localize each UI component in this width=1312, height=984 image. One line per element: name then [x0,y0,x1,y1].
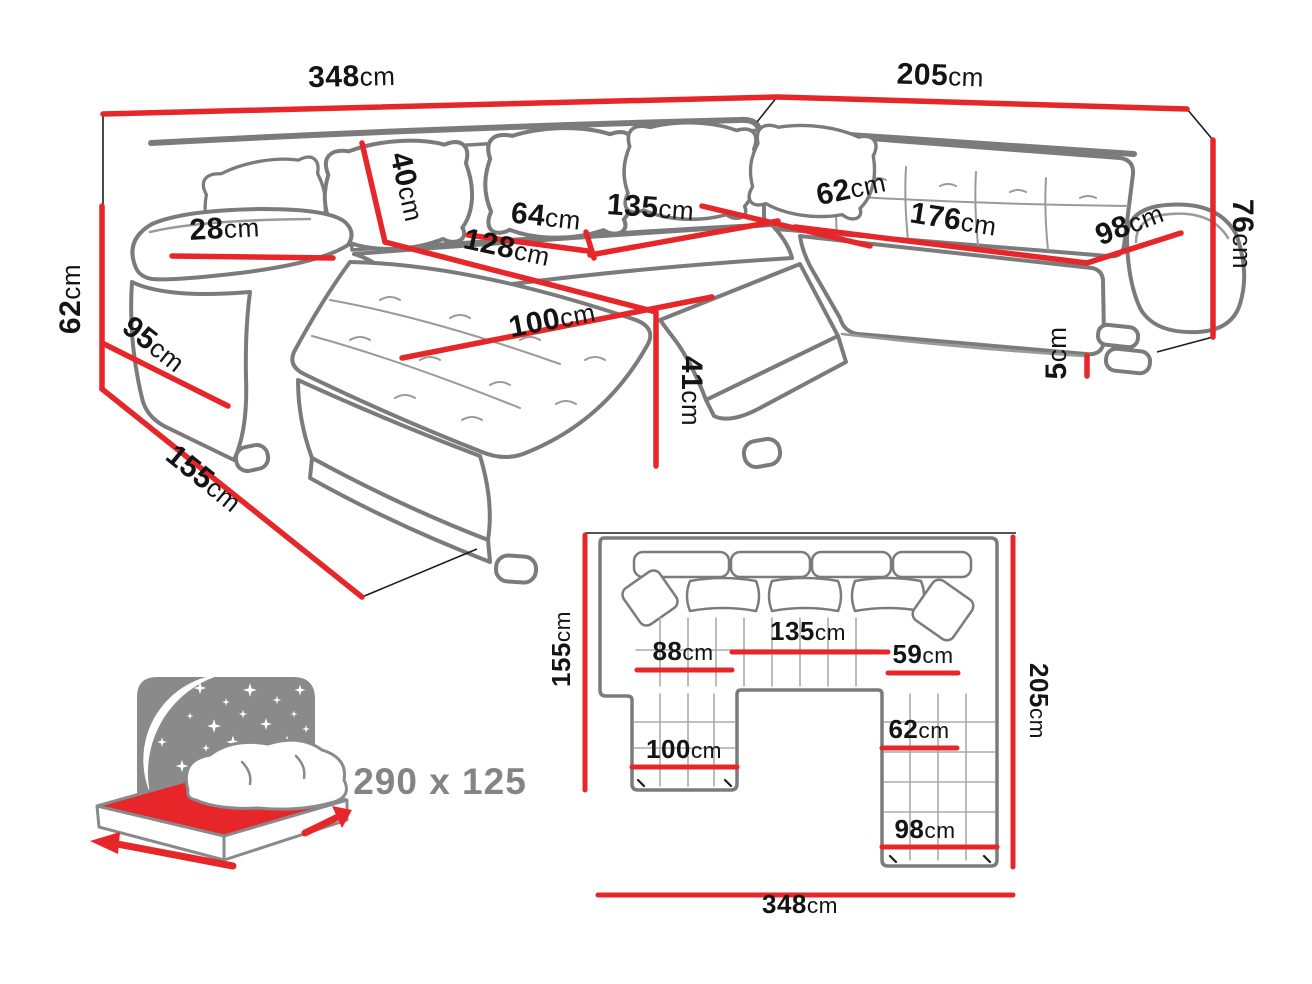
tv-100-chaise: 100cm [646,734,722,764]
sofa-foot [1097,324,1139,348]
left-armrest-body [131,282,250,460]
dim-line-348 [103,97,777,114]
plan-back-cushions [634,552,971,577]
dim-5-leg: 5cm [1040,327,1073,380]
tv-155-left: 155cm [546,611,576,687]
dim-348-top: 348cm [308,59,396,94]
dim-76-right-height: 76cm [1226,199,1259,269]
tv-205-right: 205cm [1024,663,1054,739]
tv-98-right: 98cm [894,814,955,844]
dim-205-top: 205cm [896,57,984,93]
tv-348-bottom: 348cm [762,889,838,919]
dim-28-armrest-top: 28cm [189,210,261,247]
sofa-foot [742,437,782,469]
tv-62-right-inner: 62cm [888,714,949,744]
plan-sketch [600,538,997,866]
bed-icon [90,740,352,866]
tv-59-corner: 59cm [892,639,953,669]
sofa-dimension-diagram: 348cm 205cm 62cm 155cm 95cm 28cm 40cm 12… [0,0,1312,984]
bed-size-label: 290 x 125 [353,761,527,802]
sofa-foot [495,555,537,584]
tv-88-left-seat: 88cm [652,636,713,666]
diagram-canvas: 348cm 205cm 62cm 155cm 95cm 28cm 40cm 12… [0,0,1312,984]
dim-line-205 [777,97,1187,109]
sofa-foot [1105,348,1151,374]
sleeping-function-icon: 290 x 125 [90,674,527,866]
dim-line-28 [172,256,333,258]
dim-62-left: 62cm [54,264,87,334]
perspective-view: 348cm 205cm 62cm 155cm 95cm 28cm 40cm 12… [54,57,1259,597]
top-view: 155cm 205cm 348cm 135cm 88cm 59cm 100cm … [546,533,1054,919]
dim-41-seat-height: 41cm [675,356,708,426]
sofa-sketch [131,119,1244,584]
tv-135-middle: 135cm [770,616,846,646]
